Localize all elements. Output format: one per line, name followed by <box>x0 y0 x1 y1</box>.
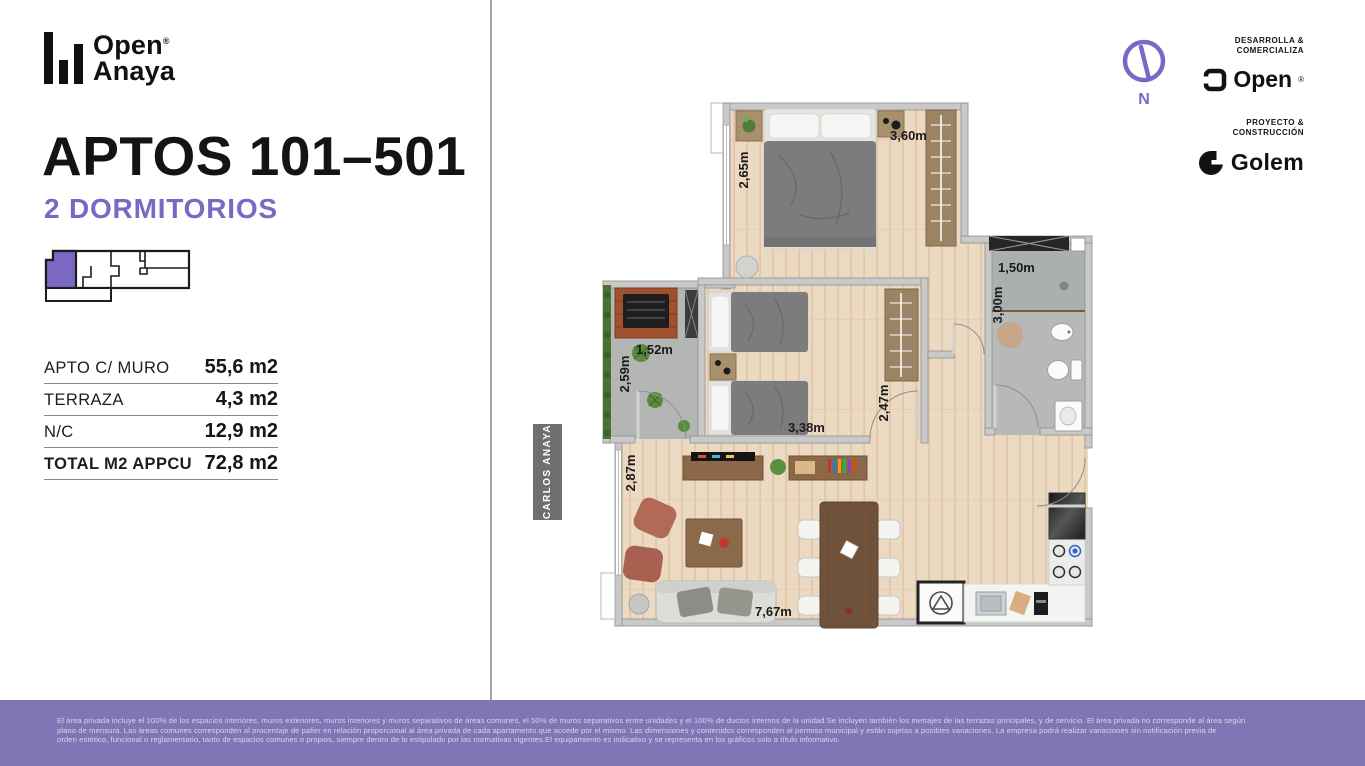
credits-block: DESARROLLA & COMERCIALIZA Open® PROYECTO… <box>1178 36 1304 176</box>
dim-terrace-depth: 2,59m <box>617 356 632 393</box>
page-title: APTOS 101–501 <box>42 124 466 188</box>
disclaimer-line-1: El área privada incluye el 100% de los e… <box>57 716 1315 726</box>
disclaimer-footer: El área privada incluye el 100% de los e… <box>0 700 1365 766</box>
dim-living-width: 7,67m <box>755 604 792 619</box>
stove <box>1049 539 1085 585</box>
dining-set <box>798 502 900 628</box>
duct-hatch <box>989 236 1085 251</box>
registered-mark: ® <box>1298 75 1304 84</box>
single-bed-1 <box>708 292 808 352</box>
open-square-icon <box>1203 68 1227 92</box>
area-table: APTO C/ MURO 55,6 m2 TERRAZA 4,3 m2 N/C … <box>44 352 278 480</box>
row-label: TOTAL M2 APPCU <box>44 455 192 474</box>
street-label: CARLOS ANAYA <box>533 424 562 520</box>
row-value: 4,3 m2 <box>216 388 278 411</box>
vertical-divider <box>490 0 492 700</box>
duct-shaft <box>918 582 964 623</box>
side-table <box>629 594 649 614</box>
developer-heading: DESARROLLA & COMERCIALIZA <box>1178 36 1304 56</box>
table-row: APTO C/ MURO 55,6 m2 <box>44 352 278 384</box>
chimney-hatch <box>685 290 698 338</box>
table-row: N/C 12,9 m2 <box>44 416 278 448</box>
golem-logo: Golem <box>1178 148 1304 176</box>
pouf-2 <box>622 545 664 584</box>
row-value: 12,9 m2 <box>205 420 278 443</box>
open-anaya-logo: Open® Anaya <box>44 28 175 84</box>
disclaimer-line-3: orden estético, funcional o reglamentari… <box>57 735 1315 745</box>
golem-icon <box>1199 148 1225 176</box>
bedroom-stool <box>736 256 758 278</box>
compass-n-label: N <box>1138 91 1150 108</box>
master-wardrobe <box>926 110 956 246</box>
table-row: TERRAZA 4,3 m2 <box>44 384 278 416</box>
disclaimer-line-2: plano de mensura. Las áreas comunes corr… <box>57 726 1315 736</box>
street-name: CARLOS ANAYA <box>542 424 553 519</box>
dim-terrace-width: 1,52m <box>636 342 673 357</box>
dim-bedroom2-width: 3,38m <box>788 420 825 435</box>
fridge <box>1049 493 1085 539</box>
coffee-table <box>686 519 742 567</box>
nightstand-left <box>736 111 762 141</box>
logo-line2: Anaya <box>93 56 175 86</box>
logo-bars-icon <box>44 28 86 84</box>
dim-hall-depth: 2,47m <box>876 385 891 422</box>
table-row-total: TOTAL M2 APPCU 72,8 m2 <box>44 448 278 480</box>
builder-heading: PROYECTO & CONSTRUCCIÓN <box>1178 118 1304 138</box>
dim-bath-width: 1,50m <box>998 260 1035 275</box>
coffee-machine <box>1034 592 1048 615</box>
north-compass-icon: N <box>1115 34 1175 110</box>
row-value: 55,6 m2 <box>205 356 278 379</box>
floor-plan-brochure: Open® Anaya APTOS 101–501 2 DORMITORIOS … <box>0 0 1365 766</box>
nightstand-bedroom2 <box>710 354 736 380</box>
dim-master-depth: 2,65m <box>736 152 751 189</box>
registered-mark: ® <box>163 36 170 46</box>
dim-master-width: 3,60m <box>890 128 927 143</box>
logo-text: Open® Anaya <box>93 28 175 84</box>
disclaimer-text: El área privada incluye el 100% de los e… <box>57 716 1315 745</box>
book-console <box>789 456 867 480</box>
toilet-bowl <box>1048 361 1069 380</box>
row-label: N/C <box>44 423 74 442</box>
shower-drain <box>1060 282 1069 291</box>
bath-rug <box>997 322 1023 348</box>
open-logo: Open® <box>1178 66 1304 93</box>
highlighted-unit <box>46 251 76 288</box>
floor-plan: 3,60m 2,65m 1,50m 3,00m 1,52m 2,59m 3,38… <box>540 95 1100 640</box>
row-label: APTO C/ MURO <box>44 359 170 378</box>
building-key-plan <box>43 247 193 304</box>
row-value: 72,8 m2 <box>205 452 278 475</box>
dim-living-depth: 2,87m <box>623 455 638 492</box>
master-bed <box>764 109 876 249</box>
tv-console <box>683 452 763 480</box>
builder-name: Golem <box>1231 149 1304 176</box>
dim-bath-depth: 3,00m <box>990 287 1005 324</box>
plant <box>770 459 786 475</box>
toilet-tank <box>1071 360 1082 380</box>
page-subtitle: 2 DORMITORIOS <box>44 193 278 225</box>
bedroom2-wardrobe <box>885 289 918 381</box>
hedge <box>603 285 611 439</box>
row-label: TERRAZA <box>44 391 124 410</box>
grill <box>615 288 677 338</box>
developer-name: Open <box>1233 66 1292 93</box>
